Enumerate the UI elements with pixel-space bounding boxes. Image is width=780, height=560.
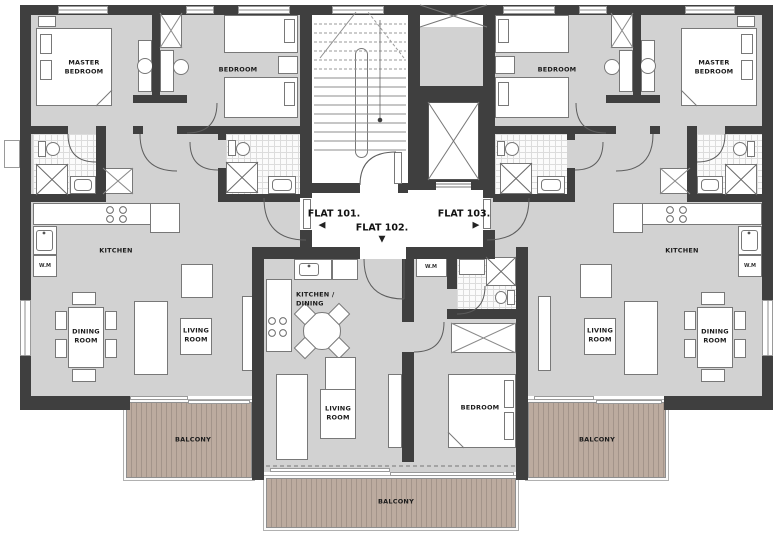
window bbox=[58, 6, 108, 14]
window bbox=[685, 6, 735, 14]
wardrobe bbox=[160, 13, 182, 48]
armchair bbox=[325, 357, 356, 390]
flat-103-label: FLAT 103. bbox=[438, 209, 490, 220]
wall-bath bbox=[218, 126, 226, 140]
tv-unit bbox=[388, 374, 402, 448]
shower bbox=[36, 164, 68, 195]
toilet-tank bbox=[747, 141, 755, 157]
dining-chair bbox=[72, 369, 96, 382]
wall-bath bbox=[687, 194, 763, 202]
dressing-desk bbox=[619, 50, 633, 92]
wall-master bbox=[606, 95, 660, 103]
window bbox=[20, 300, 31, 356]
room-label-kitchen-101: KITCHEN bbox=[86, 246, 146, 255]
room-label-living-103: LIVING ROOM bbox=[583, 327, 617, 346]
sofa bbox=[276, 374, 308, 460]
wall-stair-south bbox=[312, 183, 360, 193]
flat-103-direction-arrow: ▶ bbox=[473, 222, 480, 231]
dressing-stool bbox=[604, 59, 620, 75]
wall-f102-bath bbox=[447, 259, 457, 289]
wall-f102-hall bbox=[402, 259, 414, 322]
wall-bath bbox=[30, 194, 106, 202]
pillow bbox=[284, 19, 295, 43]
window bbox=[762, 300, 773, 356]
hall-closet bbox=[103, 168, 133, 194]
pillow bbox=[498, 82, 509, 106]
toilet-tank bbox=[507, 290, 515, 305]
sink-basin bbox=[541, 179, 561, 191]
washing-machine-label-101: W.M bbox=[39, 263, 51, 269]
toilet-tank bbox=[38, 141, 46, 157]
hall-closet bbox=[660, 168, 690, 194]
room-label-bedroom-103: BEDROOM bbox=[527, 65, 587, 74]
dressing-stool bbox=[640, 58, 656, 74]
dining-chair bbox=[701, 292, 725, 305]
wall-bath bbox=[218, 194, 300, 202]
kitchen-counter-end bbox=[150, 203, 180, 233]
sink-basin bbox=[74, 179, 92, 191]
wall-corridor-south bbox=[252, 247, 360, 259]
dining-chair bbox=[684, 339, 696, 358]
floor-plan: MASTER BEDROOM BEDROOM BEDROOM MASTER BE… bbox=[0, 0, 780, 560]
side-table bbox=[737, 16, 755, 27]
wall-bath bbox=[567, 126, 575, 140]
dressing-stool bbox=[137, 58, 153, 74]
room-label-balcony-left: BALCONY bbox=[158, 435, 228, 444]
bathroom-sink bbox=[459, 259, 485, 275]
wall-bedroom-divider bbox=[633, 15, 641, 95]
sink-basin bbox=[701, 179, 719, 191]
kitchen-counter bbox=[332, 259, 358, 280]
door-leaf bbox=[394, 152, 402, 184]
pillow bbox=[40, 60, 52, 80]
wall-bath bbox=[687, 134, 697, 202]
pillow bbox=[40, 34, 52, 54]
toilet-tank bbox=[497, 141, 505, 156]
washing-machine-label-102: W.M bbox=[425, 264, 437, 270]
sink-basin bbox=[36, 230, 53, 251]
sliding-balcony-door bbox=[534, 396, 594, 400]
toilet-bowl bbox=[733, 142, 747, 156]
shower bbox=[500, 163, 532, 194]
toilet-tank bbox=[228, 140, 236, 156]
room-label-balcony-center: BALCONY bbox=[361, 497, 431, 506]
wall-core-left bbox=[300, 5, 312, 198]
pillow bbox=[504, 412, 514, 440]
room-label-balcony-right: BALCONY bbox=[562, 435, 632, 444]
dining-chair bbox=[105, 311, 117, 330]
flat102-entrance-recess bbox=[360, 245, 406, 259]
kitchen-counter bbox=[266, 279, 292, 352]
room-label-living-101: LIVING ROOM bbox=[179, 327, 213, 346]
pillow bbox=[284, 82, 295, 106]
window-box bbox=[4, 140, 20, 168]
dining-chair bbox=[72, 292, 96, 305]
sofa bbox=[134, 301, 168, 375]
toilet-bowl bbox=[505, 142, 519, 156]
shower bbox=[226, 162, 258, 193]
sink-basin bbox=[272, 179, 292, 191]
tv-unit bbox=[538, 296, 551, 371]
pillow bbox=[741, 34, 753, 54]
wall-bath bbox=[30, 126, 68, 134]
sliding-balcony-door bbox=[270, 468, 390, 472]
elevator-cab bbox=[428, 102, 479, 180]
wall-f102-hall bbox=[402, 352, 414, 462]
nightstand bbox=[495, 56, 515, 74]
dining-chair bbox=[55, 311, 67, 330]
wall-exterior-bottom-left bbox=[20, 396, 130, 410]
sliding-balcony-door bbox=[390, 472, 514, 476]
dining-chair bbox=[734, 311, 746, 330]
wall-stair-south bbox=[398, 183, 408, 193]
wall-bath bbox=[493, 194, 575, 202]
flat-102-direction-arrow: ▼ bbox=[379, 236, 386, 245]
wall-bedroom bbox=[177, 126, 300, 134]
wall-exterior-top bbox=[20, 5, 773, 15]
sink-basin bbox=[299, 263, 319, 276]
room-label-bedroom-102: BEDROOM bbox=[450, 403, 510, 412]
dining-chair bbox=[105, 339, 117, 358]
room-label-living-102: LIVING ROOM bbox=[321, 405, 355, 424]
wall-bath bbox=[96, 134, 106, 202]
stair-handrail bbox=[355, 48, 368, 158]
sliding-balcony-door bbox=[188, 400, 250, 404]
toilet-bowl bbox=[236, 142, 250, 156]
armchair bbox=[580, 264, 612, 298]
kitchen-counter-end bbox=[613, 203, 643, 233]
wall-bedroom bbox=[493, 126, 616, 134]
wall-corridor-south bbox=[406, 247, 495, 259]
wall-bath bbox=[687, 126, 697, 134]
armchair bbox=[181, 264, 213, 298]
wall-bedroom-divider bbox=[152, 15, 160, 95]
dressing-desk bbox=[160, 50, 174, 92]
sink-basin bbox=[741, 230, 758, 251]
sofa bbox=[624, 301, 658, 375]
shower bbox=[725, 164, 757, 195]
sliding-balcony-door bbox=[596, 400, 662, 404]
toilet-bowl bbox=[46, 142, 60, 156]
dining-chair bbox=[684, 311, 696, 330]
flat-102-label: FLAT 102. bbox=[356, 223, 408, 234]
wall-bedroom bbox=[133, 126, 143, 134]
elevator-door bbox=[436, 182, 471, 190]
pillow bbox=[741, 60, 753, 80]
elevator-lobby-floor bbox=[420, 27, 487, 86]
dining-chair bbox=[734, 339, 746, 358]
window bbox=[332, 6, 384, 14]
wall-bedroom bbox=[650, 126, 660, 134]
wall-flat101-flat102 bbox=[252, 259, 264, 480]
wall-bath bbox=[725, 126, 763, 134]
window bbox=[503, 6, 555, 14]
wall-master bbox=[133, 95, 187, 103]
nightstand bbox=[278, 56, 298, 74]
room-label-kitchen-103: KITCHEN bbox=[652, 246, 712, 255]
flat-101-label: FLAT 101. bbox=[308, 209, 360, 220]
toilet-bowl bbox=[495, 291, 507, 304]
washing-machine-label-103: W.M bbox=[744, 263, 756, 269]
window bbox=[579, 6, 607, 14]
room-label-bedroom-101: BEDROOM bbox=[208, 65, 268, 74]
room-label-dining-103: DINING ROOM bbox=[698, 328, 732, 347]
wardrobe bbox=[451, 323, 516, 353]
dressing-stool bbox=[173, 59, 189, 75]
side-table bbox=[38, 16, 56, 27]
stair-section-line bbox=[378, 20, 383, 122]
dining-chair bbox=[55, 339, 67, 358]
room-label-master-bedroom-101: MASTER BEDROOM bbox=[62, 59, 106, 78]
room-label-kitchen-dining-102: KITCHEN / DINING bbox=[296, 291, 348, 310]
wardrobe bbox=[611, 13, 633, 48]
shower bbox=[486, 257, 516, 286]
room-label-dining-101: DINING ROOM bbox=[69, 328, 103, 347]
flat-101-direction-arrow: ◀ bbox=[319, 222, 326, 231]
wall-f102-bedroom-north bbox=[447, 309, 516, 319]
sliding-balcony-door bbox=[130, 396, 188, 400]
dining-chair bbox=[701, 369, 725, 382]
window bbox=[186, 6, 214, 14]
wall-bath bbox=[96, 126, 106, 134]
window bbox=[238, 6, 290, 14]
wall-flat102-flat103 bbox=[516, 247, 528, 480]
wall-lobby-south bbox=[418, 86, 489, 94]
wall-exterior-bottom-right bbox=[664, 396, 773, 410]
room-label-master-bedroom-103: MASTER BEDROOM bbox=[692, 59, 736, 78]
pillow bbox=[498, 19, 509, 43]
